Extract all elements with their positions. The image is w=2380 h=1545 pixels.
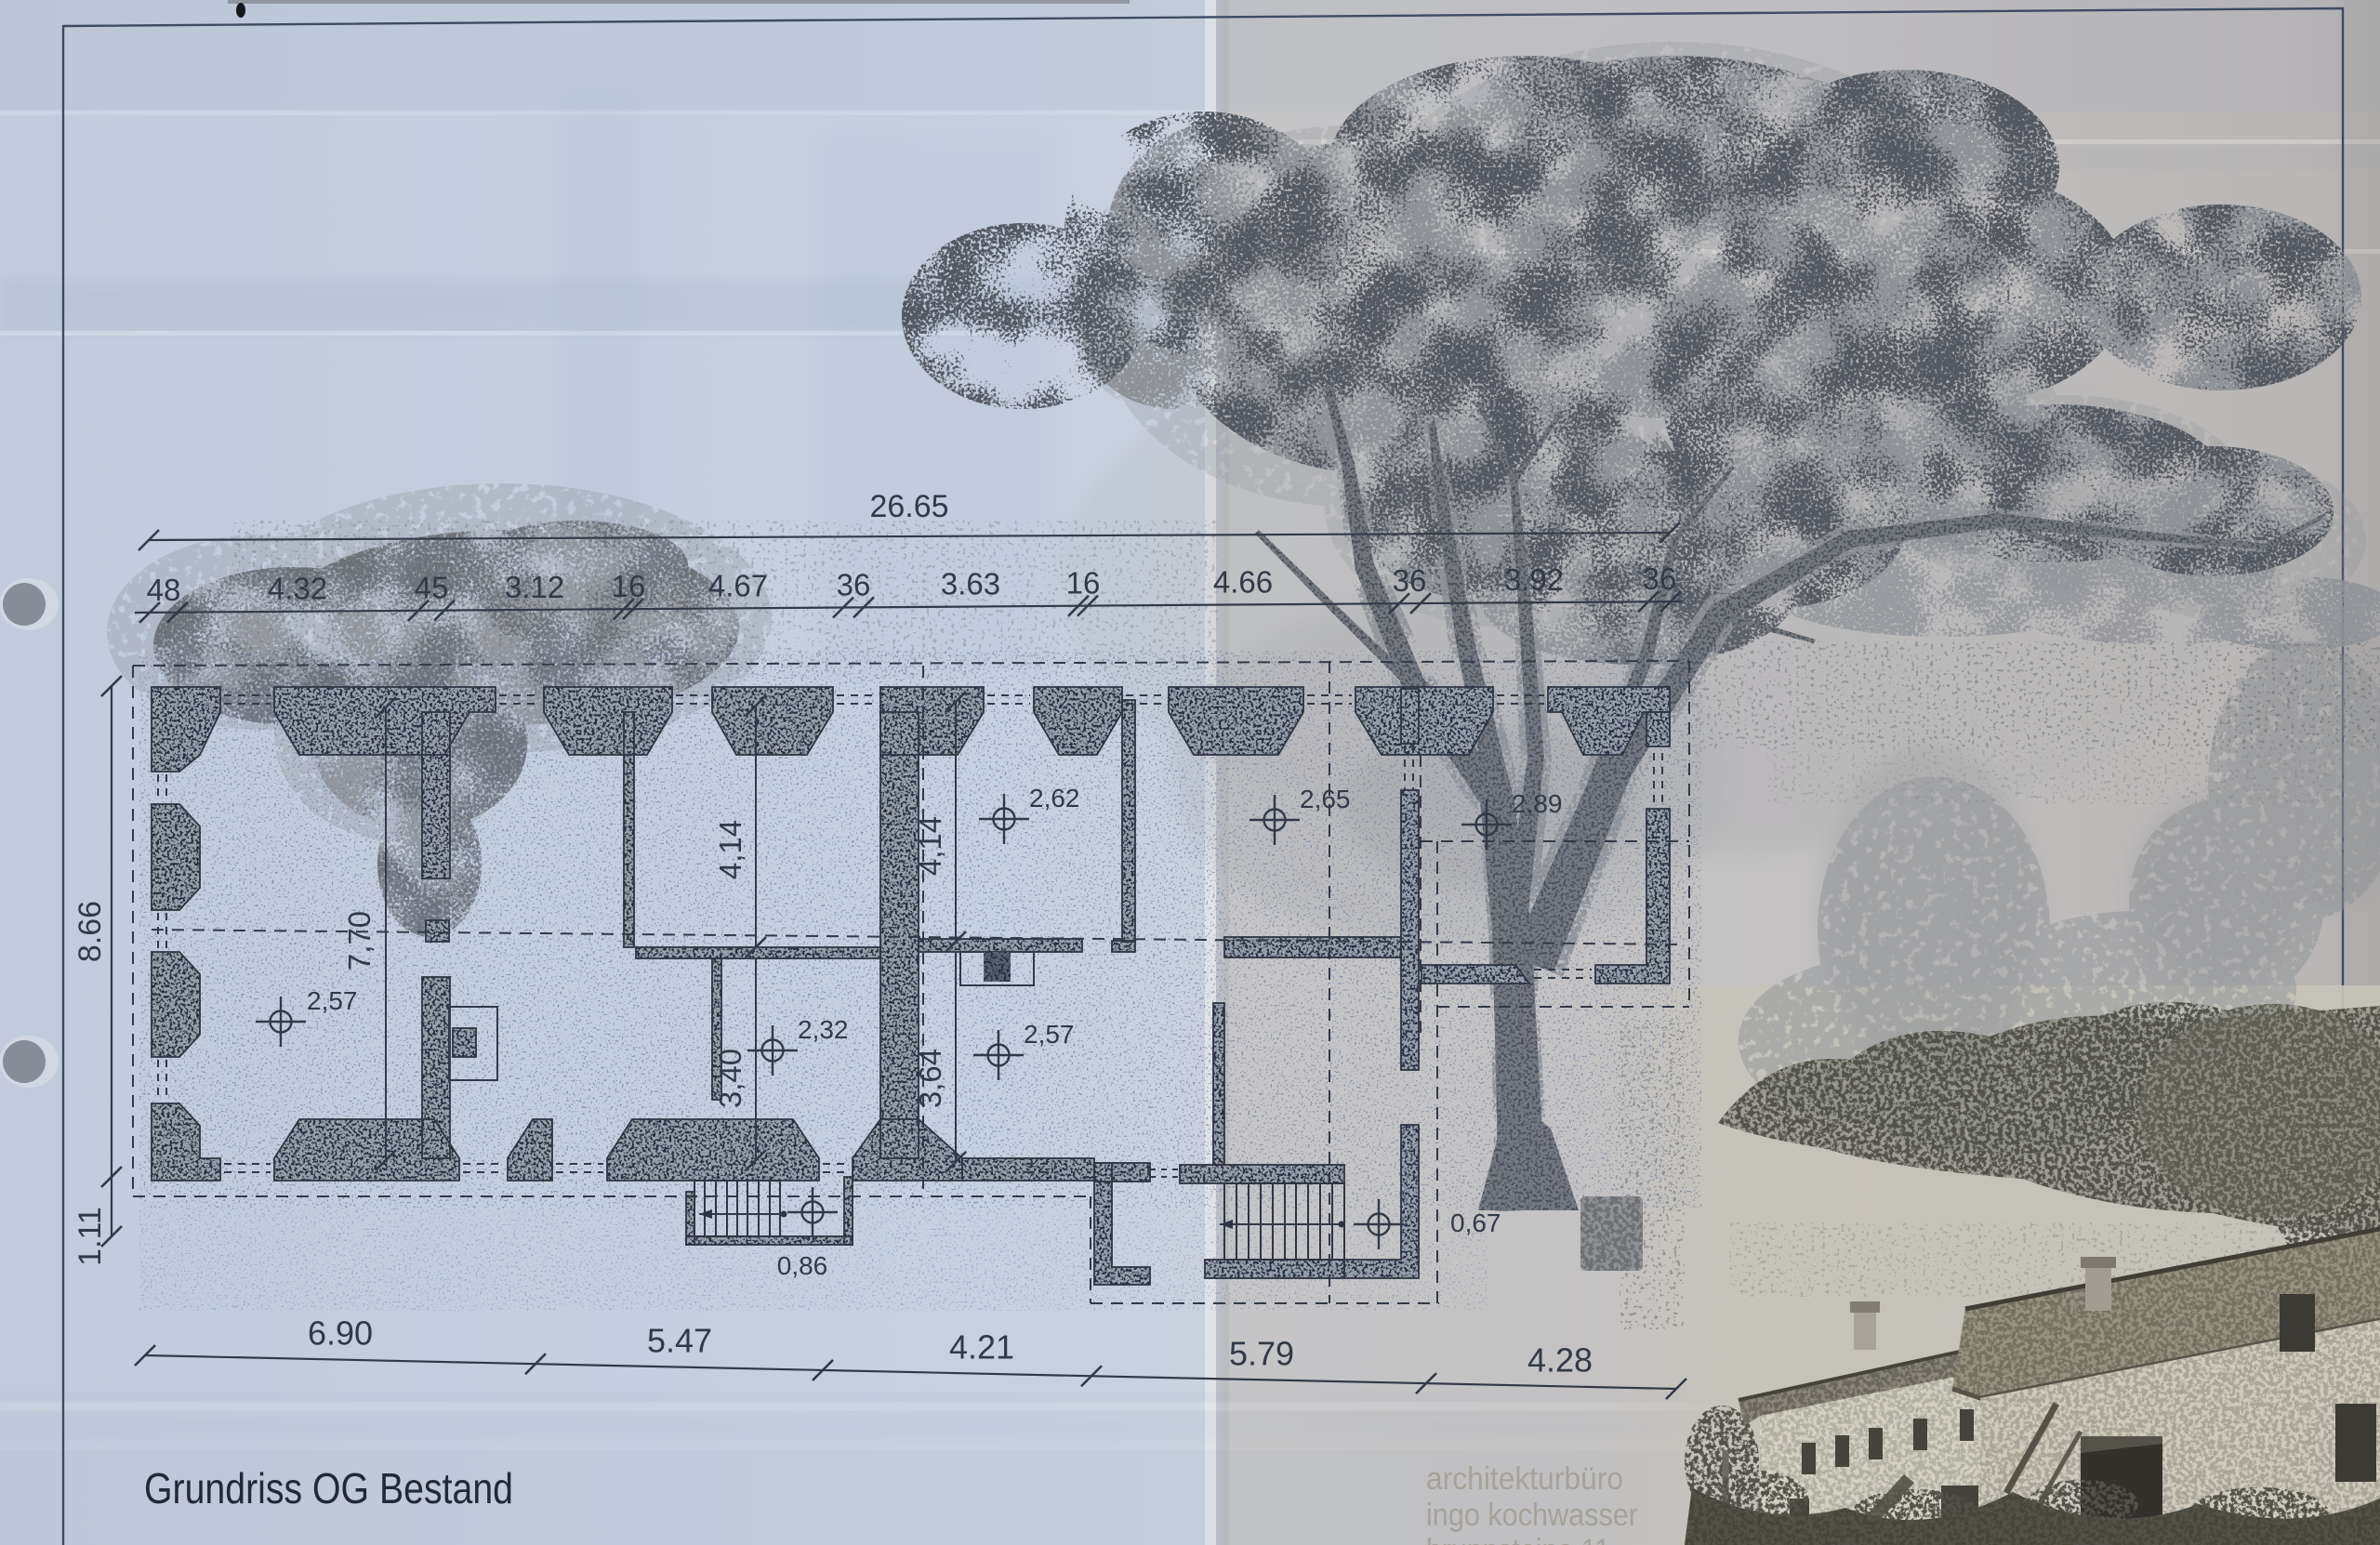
svg-text:3,40: 3,40 [713, 1049, 747, 1108]
svg-text:26.65: 26.65 [869, 489, 948, 524]
svg-text:2,32: 2,32 [798, 1015, 849, 1044]
svg-text:45: 45 [415, 571, 449, 605]
svg-text:36: 36 [1393, 563, 1427, 598]
svg-text:5.79: 5.79 [1229, 1334, 1294, 1372]
svg-text:2,65: 2,65 [1300, 785, 1351, 813]
svg-text:36: 36 [1643, 561, 1677, 596]
svg-text:2,57: 2,57 [1024, 1020, 1075, 1049]
svg-text:3.63: 3.63 [941, 567, 1000, 601]
svg-text:48: 48 [147, 573, 181, 607]
svg-text:3.92: 3.92 [1504, 562, 1564, 597]
svg-text:4.67: 4.67 [708, 568, 768, 602]
svg-text:architekturbüro: architekturbüro [1426, 1461, 1623, 1497]
svg-text:3.12: 3.12 [505, 570, 564, 604]
svg-text:4.32: 4.32 [268, 572, 327, 606]
svg-text:4.21: 4.21 [949, 1328, 1014, 1367]
svg-text:4,14: 4,14 [913, 816, 947, 876]
svg-text:6.90: 6.90 [308, 1314, 373, 1353]
svg-text:3,64: 3,64 [913, 1049, 947, 1108]
svg-text:2,89: 2,89 [1512, 789, 1563, 818]
svg-text:2,62: 2,62 [1029, 784, 1080, 812]
svg-text:2,57: 2,57 [307, 986, 358, 1015]
svg-text:0,67: 0,67 [1450, 1208, 1501, 1237]
svg-text:0,86: 0,86 [777, 1251, 828, 1280]
svg-text:5.47: 5.47 [647, 1322, 712, 1360]
svg-text:Grundriss OG Bestand: Grundriss OG Bestand [144, 1464, 513, 1512]
svg-text:4,14: 4,14 [713, 820, 747, 879]
svg-text:ingo kochwasser: ingo kochwasser [1426, 1498, 1638, 1533]
svg-text:16: 16 [612, 569, 646, 603]
svg-text:7,70: 7,70 [342, 911, 377, 971]
svg-text:16: 16 [1066, 566, 1101, 601]
svg-text:4.66: 4.66 [1213, 564, 1273, 599]
svg-text:1.11: 1.11 [73, 1207, 108, 1266]
svg-text:36: 36 [837, 567, 871, 601]
svg-text:4.28: 4.28 [1527, 1340, 1593, 1379]
svg-text:brunnsteine 11: brunnsteine 11 [1426, 1533, 1610, 1545]
svg-text:8.66: 8.66 [73, 901, 108, 962]
